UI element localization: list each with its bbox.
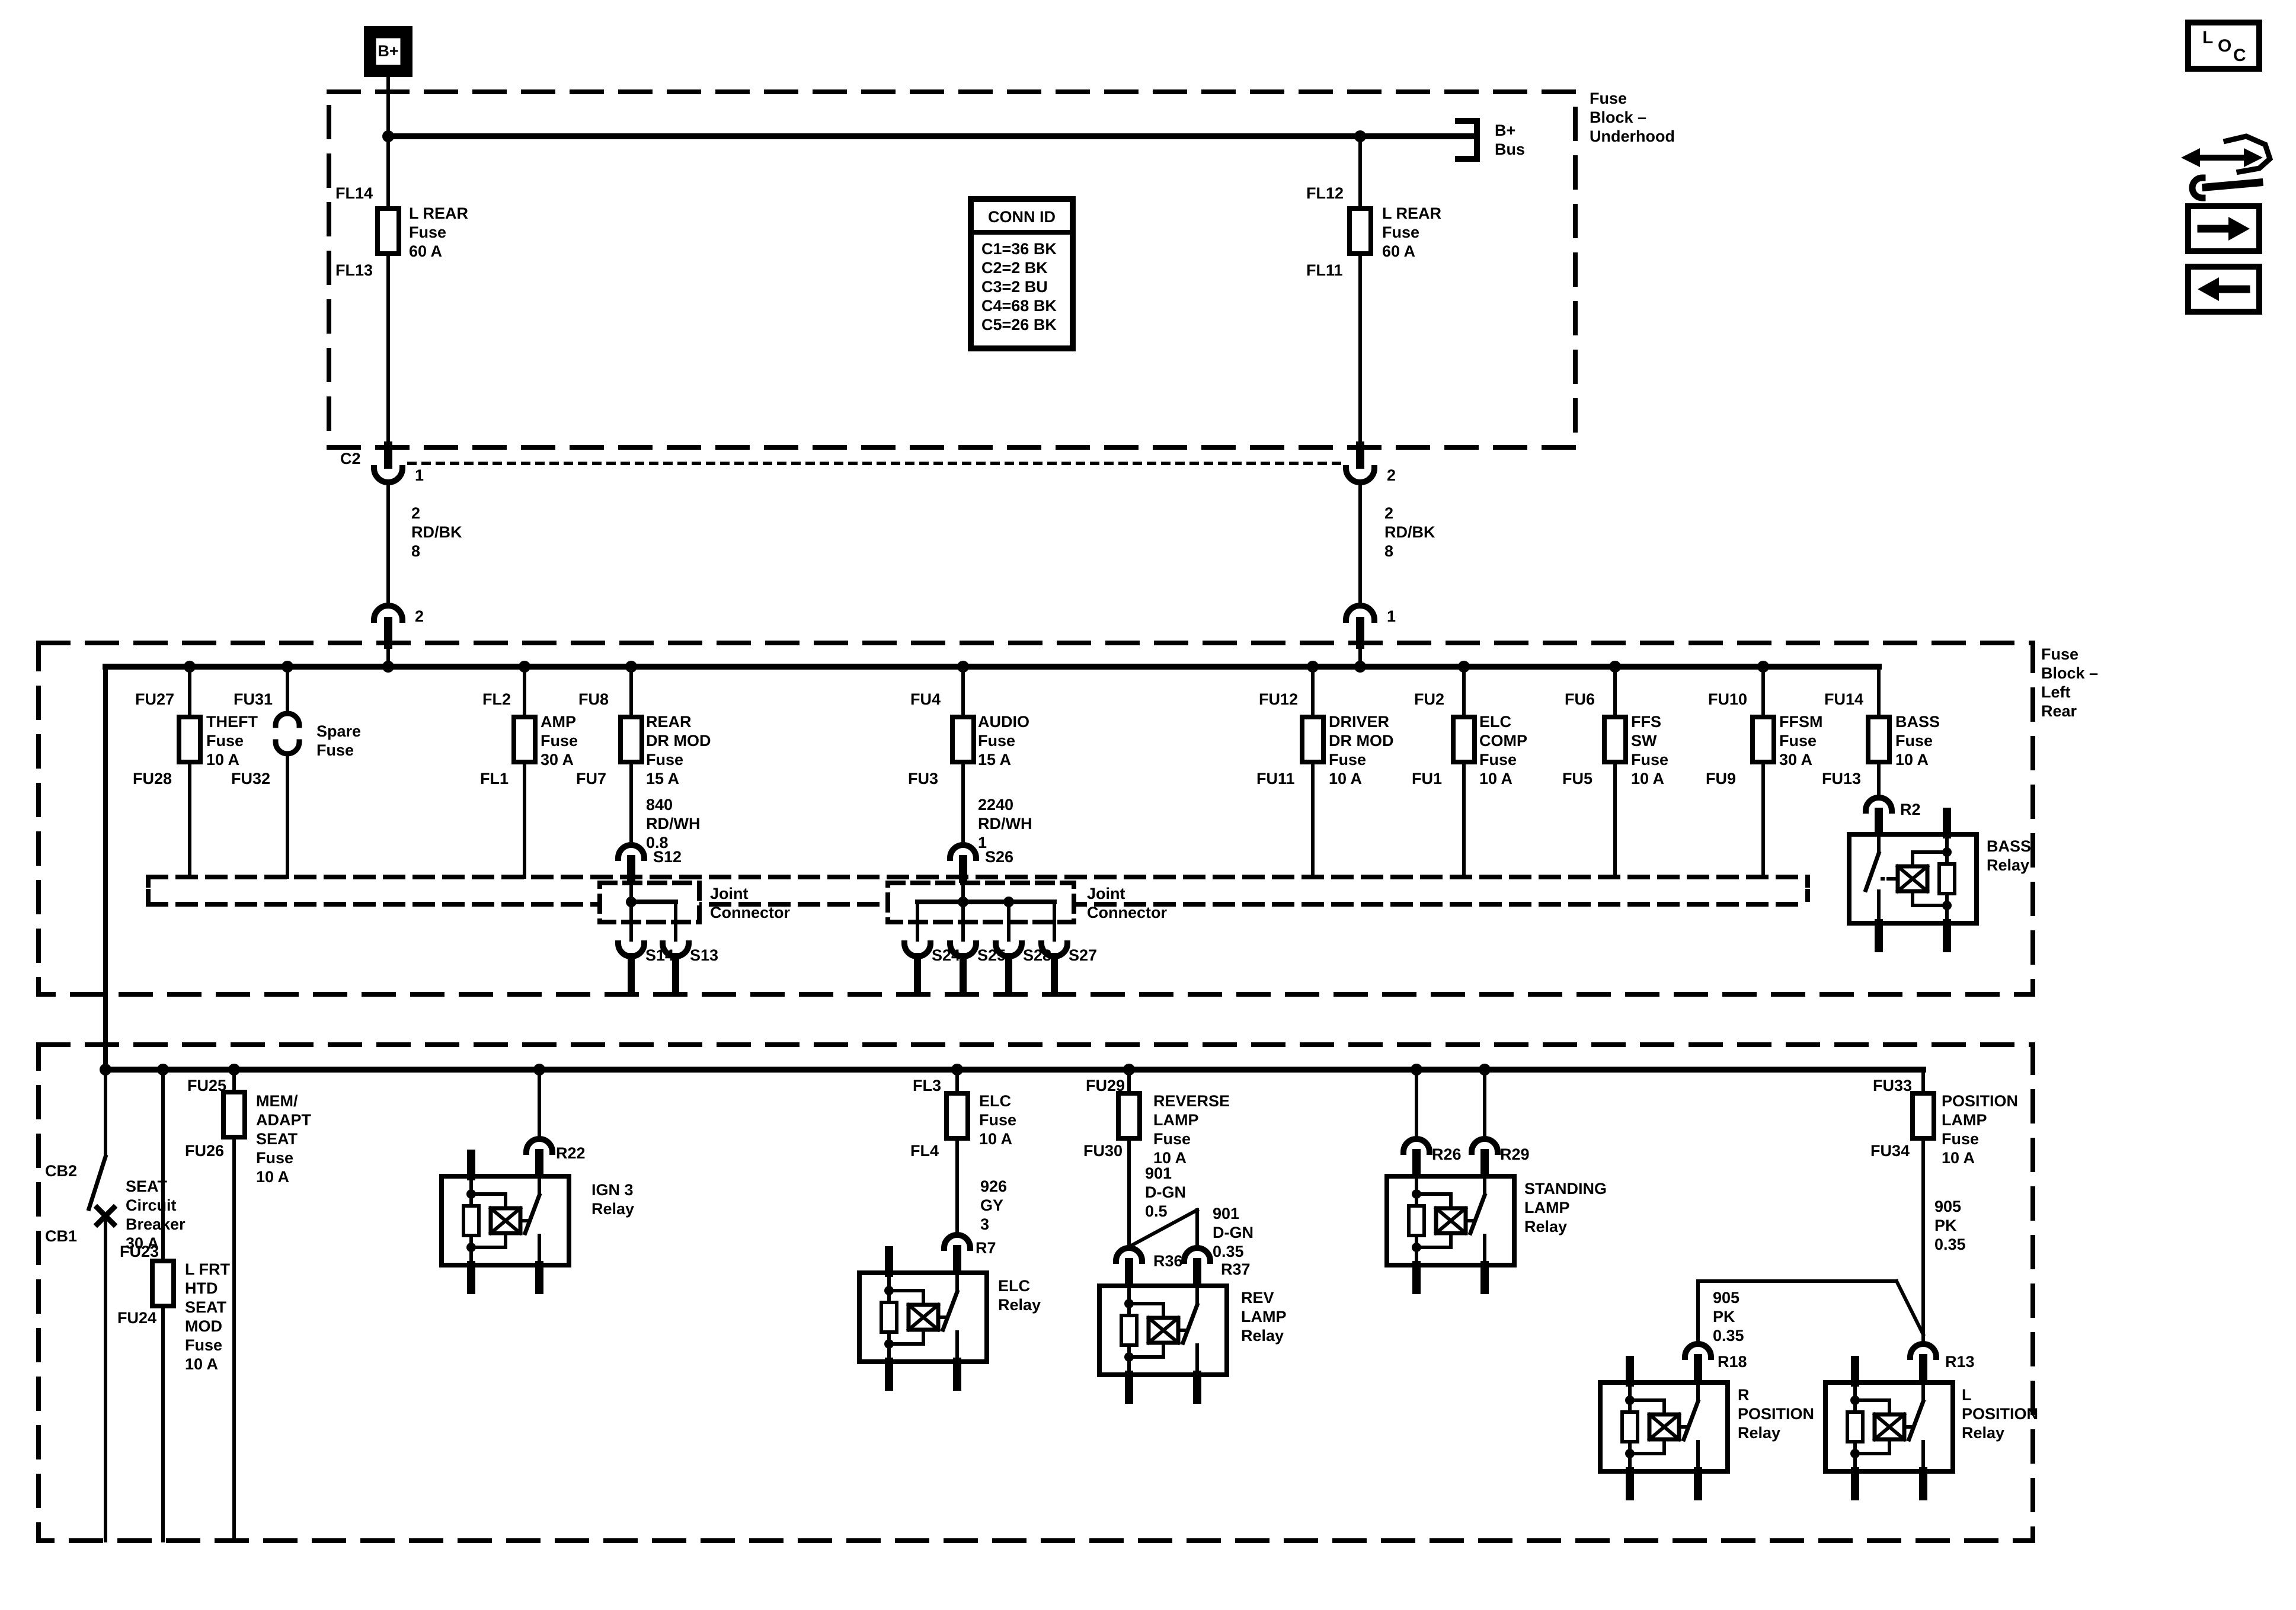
label-fl11: FL11 <box>1306 261 1343 280</box>
l-frt-htd-seat-fuse-column <box>152 1070 174 1541</box>
label-r18: R18 <box>1718 1352 1747 1371</box>
pin-right-bottom: 1 <box>1387 607 1396 626</box>
fuse-name-elc: ELC Fuse 10 A <box>979 1092 1016 1148</box>
bottom-bus <box>100 1064 1923 1076</box>
bass-relay-symbol <box>1849 812 1977 948</box>
wire-2240-rdwh: 2240 RD/WH 1 <box>978 795 1032 852</box>
b-plus-terminal-label: B+ <box>374 41 402 60</box>
fuse-name-audio: AUDIO Fuse 15 A <box>978 712 1029 769</box>
label-r26: R26 <box>1432 1145 1462 1164</box>
inline-connectors <box>374 446 1374 667</box>
elc-fuse-column <box>944 1070 970 1274</box>
label-fu1: FU1 <box>1412 769 1442 788</box>
standing-lamp-relay-symbol <box>1387 1070 1514 1290</box>
audio-fuse-column <box>950 667 976 884</box>
loc-letter-c: C <box>2233 46 2246 65</box>
label-r29: R29 <box>1500 1145 1530 1164</box>
wire-905-pk-main: 905 PK 0.35 <box>1934 1197 1966 1254</box>
loc-letter-l: L <box>2202 28 2213 47</box>
label-fl2: FL2 <box>482 690 511 709</box>
label-cb1: CB1 <box>45 1227 77 1246</box>
l-position-relay-label: L POSITION Relay <box>1962 1385 2038 1442</box>
label-fu26: FU26 <box>185 1141 224 1160</box>
fuse-name-driver: DRIVER DR MOD Fuse 10 A <box>1329 712 1394 788</box>
underhood-block-label: Fuse Block – Underhood <box>1590 89 1675 146</box>
label-fu13: FU13 <box>1822 769 1861 788</box>
rev-lamp-relay-label: REV LAMP Relay <box>1241 1288 1287 1345</box>
label-fu3: FU3 <box>908 769 938 788</box>
label-fu8: FU8 <box>578 690 609 709</box>
label-s14: S14 <box>645 946 674 965</box>
label-r13: R13 <box>1945 1352 1975 1371</box>
back-arrow-button[interactable] <box>2188 267 2259 312</box>
theft-fuse-column <box>179 667 200 877</box>
pin-left-bottom: 2 <box>415 607 424 626</box>
elc-relay-label: ELC Relay <box>998 1276 1041 1314</box>
driver-dr-mod-fuse-column <box>1302 667 1323 877</box>
label-cb2: CB2 <box>45 1161 77 1180</box>
underhood-block-outline <box>329 92 1575 447</box>
label-fl1: FL1 <box>480 769 509 788</box>
fuse-name-position-lamp: POSITION LAMP Fuse 10 A <box>1942 1092 2018 1167</box>
ffsm-fuse-column <box>1753 667 1774 877</box>
r-position-relay-symbol <box>1600 1360 1728 1496</box>
label-s26: S26 <box>985 847 1013 866</box>
wire-right-rdbk: 2 RD/BK 8 <box>1384 504 1435 561</box>
label-fu2: FU2 <box>1414 690 1444 709</box>
b-bus-label: B+ Bus <box>1495 121 1525 159</box>
label-fu4: FU4 <box>910 690 941 709</box>
ign3-relay-label: IGN 3 Relay <box>591 1180 634 1218</box>
fuse-fl12-fl11 <box>1350 209 1371 254</box>
spare-fuse-column <box>276 667 299 877</box>
label-fu30: FU30 <box>1083 1141 1123 1160</box>
label-fu11: FU11 <box>1256 769 1295 788</box>
label-fu6: FU6 <box>1565 690 1595 709</box>
label-fl4: FL4 <box>910 1141 939 1160</box>
wire-901-dgn-05: 901 D-GN 0.5 <box>1145 1164 1186 1221</box>
ign3-relay-symbol <box>442 1070 569 1290</box>
label-s27: S27 <box>1069 946 1097 965</box>
pin-left-top: 1 <box>415 466 424 485</box>
r-position-relay-label: R POSITION Relay <box>1738 1385 1814 1442</box>
label-fl13: FL13 <box>335 261 373 280</box>
loc-letter-o: O <box>2218 37 2231 56</box>
wire-905-pk-branch: 905 PK 0.35 <box>1713 1288 1744 1345</box>
fuse-name-l-rear-right: L REAR Fuse 60 A <box>1382 204 1441 261</box>
fuse-fl14-fl13 <box>378 209 399 254</box>
label-fu25: FU25 <box>187 1076 226 1095</box>
conn-id-title: CONN ID <box>971 207 1073 226</box>
bass-relay-label: BASS Relay <box>1987 837 2031 875</box>
label-fu7: FU7 <box>576 769 606 788</box>
label-s25: S25 <box>977 946 1006 965</box>
l-position-relay-symbol <box>1825 1360 1953 1496</box>
label-fu33: FU33 <box>1873 1076 1912 1095</box>
joint-connector-2-label: Joint Connector <box>1087 884 1167 922</box>
wire-840-rdwh: 840 RD/WH 0.8 <box>646 795 700 852</box>
fuse-name-l-rear-left: L REAR Fuse 60 A <box>409 204 468 261</box>
label-s13: S13 <box>690 946 718 965</box>
bass-fuse-column <box>1866 667 1892 836</box>
label-c2: C2 <box>340 449 361 468</box>
label-fu24: FU24 <box>117 1308 156 1327</box>
label-fu27: FU27 <box>135 690 174 709</box>
fuse-name-mem-adapt: MEM/ ADAPT SEAT Fuse 10 A <box>256 1092 311 1186</box>
fuse-name-amp: AMP Fuse 30 A <box>541 712 578 769</box>
label-s28: S28 <box>1023 946 1051 965</box>
label-fu32: FU32 <box>231 769 270 788</box>
elc-relay-symbol <box>859 1250 987 1387</box>
fuse-name-ffs: FFS SW Fuse 10 A <box>1631 712 1668 788</box>
b-bus-bracket <box>1458 121 1477 159</box>
left-rear-block-label: Fuse Block – Left Rear <box>2041 645 2098 721</box>
label-r36: R36 <box>1153 1251 1183 1270</box>
wire-901-dgn-035: 901 D-GN 0.35 <box>1213 1204 1253 1261</box>
label-fu5: FU5 <box>1562 769 1593 788</box>
label-r22: R22 <box>556 1144 586 1163</box>
amp-fuse-column <box>514 667 535 877</box>
joint-connector-2 <box>888 883 1074 993</box>
label-fu14: FU14 <box>1824 690 1863 709</box>
label-fu10: FU10 <box>1708 690 1747 709</box>
label-r37: R37 <box>1221 1260 1251 1279</box>
pin-right-top: 2 <box>1387 466 1396 485</box>
seat-circuit-breaker-label: SEAT Circuit Breaker 30 A <box>126 1177 186 1253</box>
label-r2: R2 <box>1900 800 1921 819</box>
label-fu9: FU9 <box>1706 769 1736 788</box>
label-r7: R7 <box>976 1238 996 1257</box>
joint-connector-1-label: Joint Connector <box>710 884 790 922</box>
label-fu23: FU23 <box>120 1242 159 1261</box>
next-arrow-button[interactable] <box>2188 206 2259 251</box>
fuse-name-theft: THEFT Fuse 10 A <box>206 712 258 769</box>
label-fl3: FL3 <box>913 1076 941 1095</box>
wire-926-gy: 926 GY 3 <box>980 1177 1007 1234</box>
label-s24: S24 <box>932 946 960 965</box>
joint-connector-1 <box>600 883 699 993</box>
label-fl14: FL14 <box>335 184 373 203</box>
fuse-name-rear-dr-mod: REAR DR MOD Fuse 15 A <box>646 712 711 788</box>
rev-lamp-relay-symbol <box>1099 1286 1227 1400</box>
seat-circuit-breaker-column <box>89 1070 114 1541</box>
label-s12: S12 <box>653 847 682 866</box>
rear-dr-mod-fuse-column <box>618 667 644 884</box>
label-fu34: FU34 <box>1870 1141 1910 1160</box>
fuse-name-reverse-lamp: REVERSE LAMP Fuse 10 A <box>1153 1092 1230 1167</box>
fuse-name-ffsm: FFSM Fuse 30 A <box>1779 712 1823 769</box>
label-fu31: FU31 <box>234 690 273 709</box>
fuse-name-spare: Spare Fuse <box>316 722 361 760</box>
fuse-name-bass: BASS Fuse 10 A <box>1895 712 1940 769</box>
label-fu29: FU29 <box>1086 1076 1125 1095</box>
label-fu28: FU28 <box>133 769 172 788</box>
wire-left-rdbk: 2 RD/BK 8 <box>411 504 462 561</box>
elc-comp-fuse-column <box>1453 667 1475 877</box>
wrench-arrow-icon[interactable] <box>2181 136 2270 198</box>
conn-id-rows: C1=36 BK C2=2 BK C3=2 BU C4=68 BK C5=26 … <box>981 239 1057 334</box>
standing-lamp-relay-label: STANDING LAMP Relay <box>1524 1179 1607 1236</box>
fuse-name-elc-comp: ELC COMP Fuse 10 A <box>1479 712 1527 788</box>
ffs-sw-fuse-column <box>1604 667 1626 877</box>
fuse-name-l-frt-htd: L FRT HTD SEAT MOD Fuse 10 A <box>185 1260 230 1374</box>
label-fl12: FL12 <box>1306 184 1344 203</box>
wiring-diagram-page: B+ Fuse Block – Underhood B+ Bus FL14 L … <box>0 0 2296 1610</box>
label-fu12: FU12 <box>1259 690 1298 709</box>
